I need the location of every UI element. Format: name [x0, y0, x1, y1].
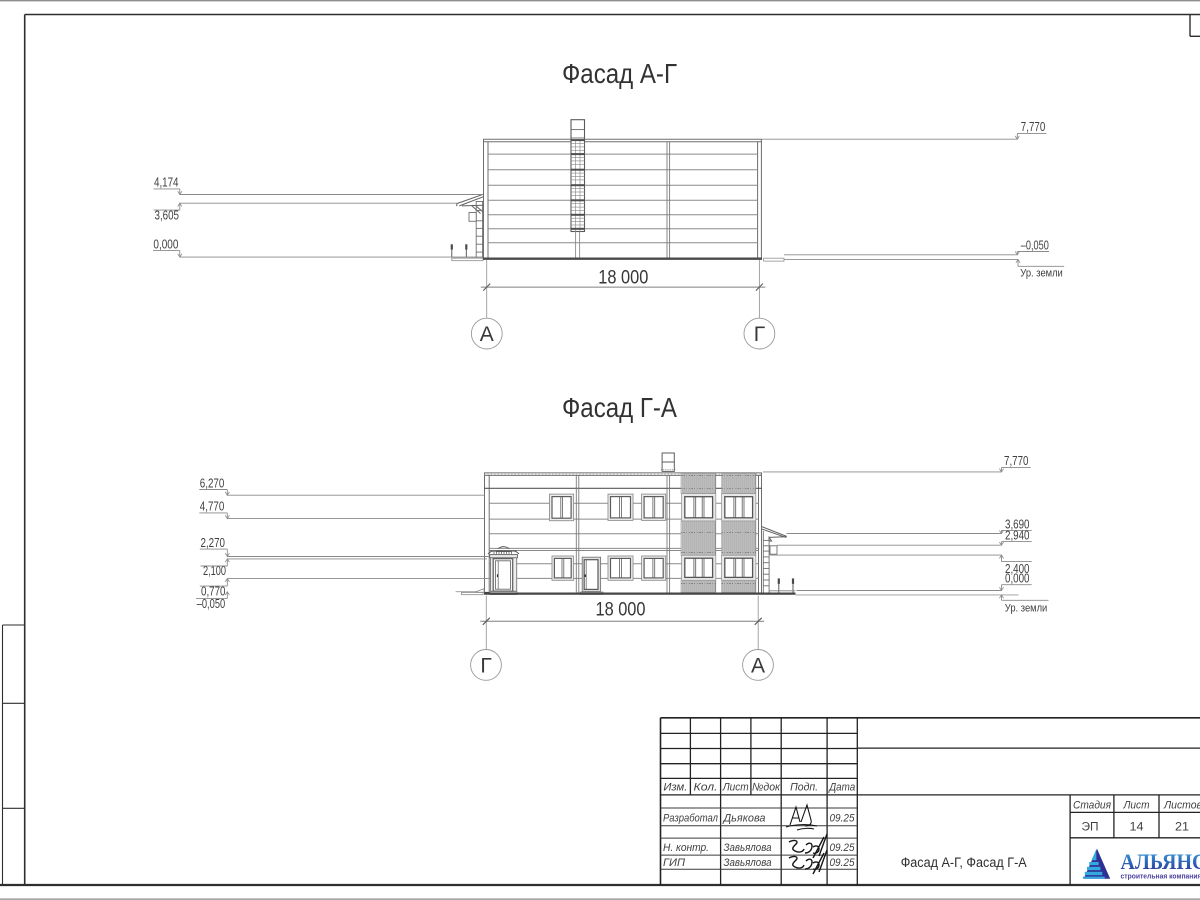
svg-text:14: 14	[1130, 820, 1144, 834]
svg-text:09.25: 09.25	[830, 813, 856, 825]
svg-text:7,770: 7,770	[1004, 454, 1029, 468]
svg-text:Завьялова: Завьялова	[724, 857, 772, 869]
svg-text:Изм.: Изм.	[663, 782, 687, 794]
svg-text:АЛЬЯНС: АЛЬЯНС	[1121, 849, 1200, 874]
svg-text:3,605: 3,605	[155, 209, 180, 223]
svg-text:ГИП: ГИП	[663, 857, 685, 869]
svg-text:–0,050: –0,050	[197, 597, 226, 611]
svg-text:Дата: Дата	[827, 782, 855, 794]
svg-text:4,174: 4,174	[154, 176, 179, 190]
svg-text:Г: Г	[754, 323, 765, 346]
svg-text:Разработал: Разработал	[663, 813, 718, 825]
svg-text:0,000: 0,000	[153, 238, 178, 252]
svg-text:21: 21	[1175, 820, 1189, 834]
svg-text:2,940: 2,940	[1005, 529, 1030, 543]
svg-text:7,770: 7,770	[1021, 120, 1046, 134]
svg-text:Стадия: Стадия	[1073, 799, 1111, 811]
svg-text:Дьякова: Дьякова	[722, 813, 766, 825]
svg-text:А: А	[751, 655, 765, 678]
svg-text:18 000: 18 000	[596, 598, 646, 620]
svg-text:Фасад А-Г: Фасад А-Г	[562, 58, 677, 89]
svg-text:Лист: Лист	[1123, 799, 1150, 811]
svg-text:Кол.: Кол.	[694, 782, 718, 794]
svg-text:Ур. земли: Ур. земли	[1005, 603, 1048, 615]
svg-text:09.25: 09.25	[830, 842, 856, 854]
svg-text:0,000: 0,000	[1005, 572, 1030, 586]
svg-text:строительная компания: строительная компания	[1121, 874, 1200, 881]
svg-text:№док: №док	[752, 782, 781, 794]
svg-text:18 000: 18 000	[598, 267, 648, 289]
svg-text:Фасад Г-А: Фасад Г-А	[562, 392, 678, 423]
svg-text:Г: Г	[480, 655, 491, 678]
svg-text:Завьялова: Завьялова	[724, 842, 772, 854]
svg-text:Лист: Лист	[722, 782, 749, 794]
svg-text:Подп.: Подп.	[790, 782, 818, 794]
svg-text:09.25: 09.25	[830, 857, 856, 869]
svg-text:6,270: 6,270	[200, 476, 225, 490]
svg-text:Листов: Листов	[1163, 799, 1200, 811]
svg-text:–0,050: –0,050	[1021, 238, 1049, 252]
svg-text:Н. контр.: Н. контр.	[663, 842, 709, 854]
svg-text:4,770: 4,770	[200, 500, 225, 514]
svg-text:Фасад А-Г, Фасад Г-А: Фасад А-Г, Фасад Г-А	[901, 855, 1027, 871]
svg-text:Ур. земли: Ур. земли	[1020, 268, 1063, 280]
svg-text:2,270: 2,270	[201, 536, 226, 550]
svg-text:ЭП: ЭП	[1082, 820, 1099, 834]
svg-text:А: А	[480, 323, 494, 346]
